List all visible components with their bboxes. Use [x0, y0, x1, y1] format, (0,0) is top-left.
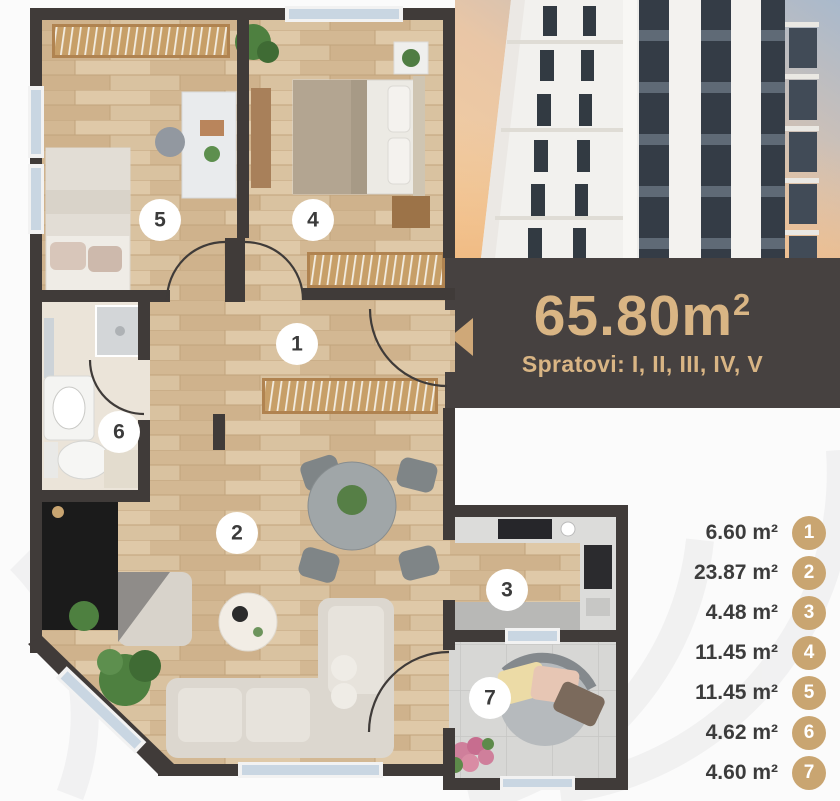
building-balconies	[785, 22, 819, 258]
legend-badge: 6	[792, 716, 826, 750]
room-marker-5: 5	[139, 199, 181, 241]
legend-area-label: 4.48 m²	[706, 601, 778, 625]
svg-text:4: 4	[307, 209, 319, 232]
window	[505, 628, 560, 644]
legend-row: 23.87 m² 2	[586, 553, 826, 593]
legend-row: 4.62 m² 6	[586, 713, 826, 753]
svg-text:1: 1	[291, 333, 303, 356]
window	[28, 164, 44, 234]
svg-text:7: 7	[484, 687, 496, 710]
legend-area-label: 6.60 m²	[706, 521, 778, 545]
room-marker-6: 6	[98, 411, 140, 453]
svg-text:3: 3	[501, 579, 513, 602]
legend-area-label: 23.87 m²	[694, 561, 778, 585]
area-legend: 6.60 m² 1 23.87 m² 2 4.48 m² 3 11.45 m² …	[586, 513, 826, 793]
legend-badge: 7	[792, 756, 826, 790]
room-marker-3: 3	[486, 569, 528, 611]
window	[238, 762, 383, 778]
legend-badge: 2	[792, 556, 826, 590]
building-right-face	[637, 0, 819, 258]
floor-plan: 1 2 3 4 5 6 7	[0, 0, 660, 801]
svg-text:6: 6	[113, 421, 125, 444]
legend-area-label: 11.45 m²	[695, 641, 778, 665]
entrance-opening	[441, 310, 455, 372]
legend-area-label: 4.60 m²	[706, 761, 778, 785]
legend-row: 6.60 m² 1	[586, 513, 826, 553]
room-marker-1: 1	[276, 323, 318, 365]
room-marker-4: 4	[292, 199, 334, 241]
apartment-flyer: 65.80m2 Spratovi: I, II, III, IV, V	[0, 0, 840, 801]
window	[28, 86, 44, 158]
window	[285, 6, 403, 22]
legend-row: 11.45 m² 4	[586, 633, 826, 673]
legend-row: 4.60 m² 7	[586, 753, 826, 793]
legend-badge: 1	[792, 516, 826, 550]
legend-badge: 4	[792, 636, 826, 670]
room-marker-2: 2	[216, 512, 258, 554]
legend-badge: 5	[792, 676, 826, 710]
legend-area-label: 11.45 m²	[695, 681, 778, 705]
legend-badge: 3	[792, 596, 826, 630]
legend-row: 4.48 m² 3	[586, 593, 826, 633]
window	[500, 776, 575, 790]
svg-text:2: 2	[231, 522, 243, 545]
legend-row: 11.45 m² 5	[586, 673, 826, 713]
total-area-sup: 2	[733, 287, 751, 322]
legend-area-label: 4.62 m²	[706, 721, 778, 745]
svg-text:5: 5	[154, 209, 166, 232]
room-marker-7: 7	[469, 677, 511, 719]
